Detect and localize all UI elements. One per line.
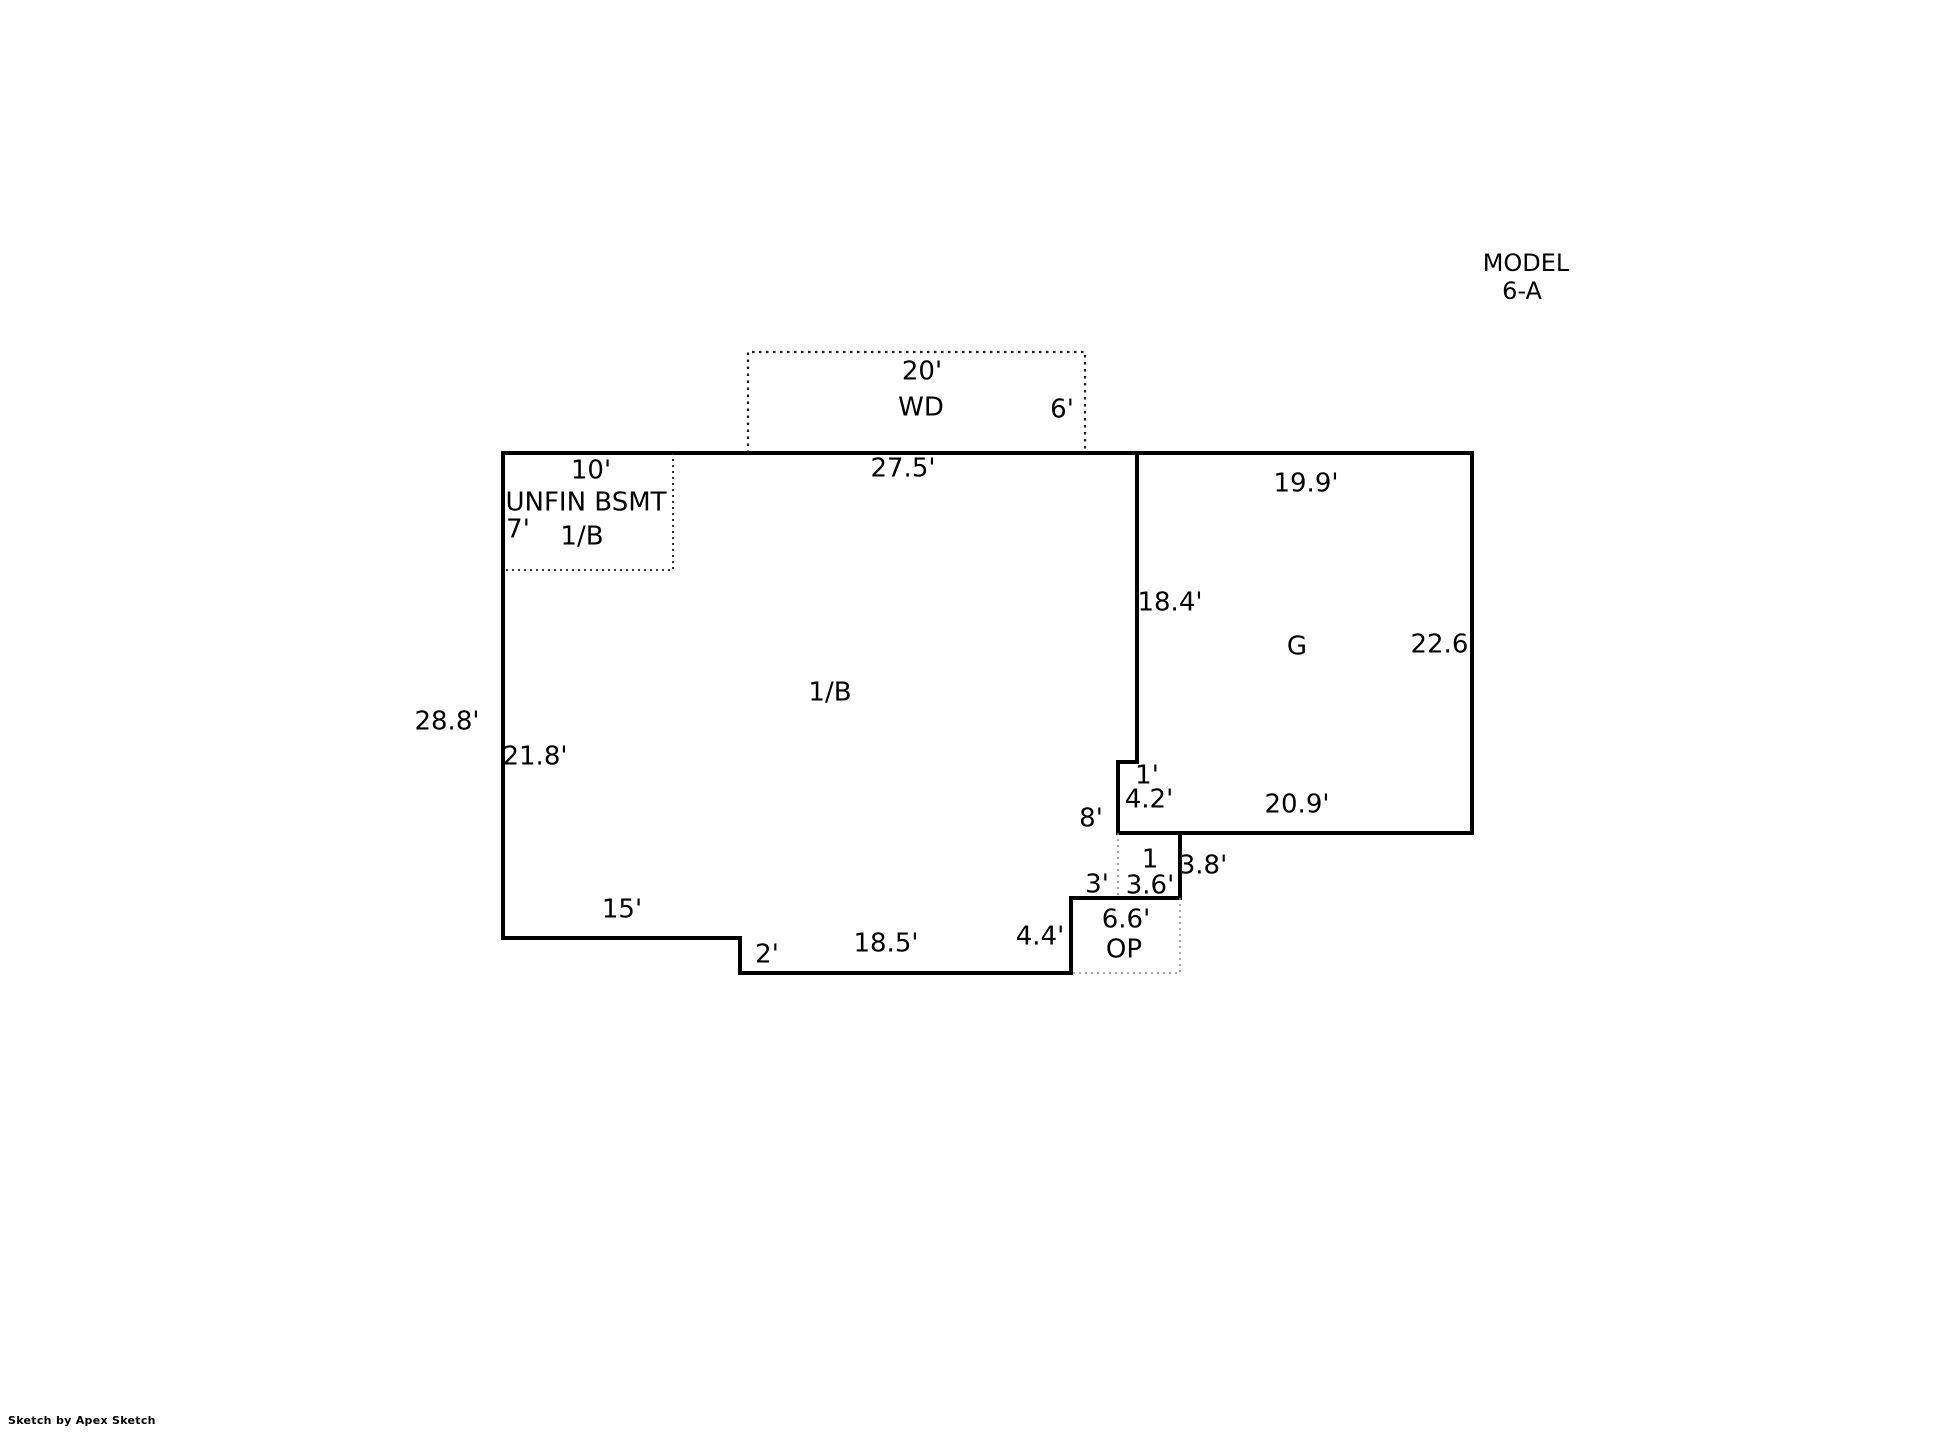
main-area-code: 1/B [808, 679, 851, 708]
basement-depth-dim: 7' [506, 516, 530, 545]
sketch-credit: Sketch by Apex Sketch [8, 1414, 156, 1427]
stoop-right-dim: 3.8' [1179, 852, 1228, 881]
main-top-dim: 27.5' [870, 455, 935, 484]
model-title-line2: 6-A [1502, 278, 1542, 304]
basement-name: UNFIN BSMT [505, 489, 666, 518]
basement-width-dim: 10' [571, 457, 611, 486]
main-left-inner-dim: 21.8' [502, 743, 567, 772]
house-perimeter-wall [503, 453, 1472, 973]
garage-right-dim: 22.6' [1410, 631, 1475, 660]
main-left-dim: 28.8' [414, 708, 479, 737]
garage-left-dim: 18.4' [1137, 589, 1202, 618]
main-step-south-dim: 2' [755, 941, 779, 970]
floorplan-page: MODEL 6-A 20' WD 6' 10' UNFIN BSMT 7' 1/… [0, 0, 1958, 1436]
main-step-east-dim: 4.4' [1016, 923, 1065, 952]
deck-width-dim: 20' [902, 358, 942, 387]
basement-code: 1/B [560, 523, 603, 552]
garage-notch-depth-dim: 4.2' [1125, 786, 1174, 815]
porch-width-dim: 6.6' [1102, 906, 1151, 935]
deck-depth-dim: 6' [1050, 396, 1074, 425]
garage-top-dim: 19.9' [1273, 470, 1338, 499]
floorplan-drawing [0, 0, 1958, 1436]
garage-bottom-dim: 20.9' [1264, 791, 1329, 820]
main-bottom-west-dim: 15' [602, 896, 642, 925]
deck-label: WD [898, 394, 944, 423]
porch-label: OP [1106, 936, 1142, 965]
main-bottom-east-dim: 3' [1085, 871, 1109, 900]
main-east-dim: 8' [1079, 805, 1103, 834]
model-title-line1: MODEL [1483, 250, 1570, 276]
garage-label: G [1287, 633, 1307, 662]
main-bottom-mid-dim: 18.5' [853, 930, 918, 959]
stoop-bottom-dim: 3.6' [1126, 872, 1175, 901]
